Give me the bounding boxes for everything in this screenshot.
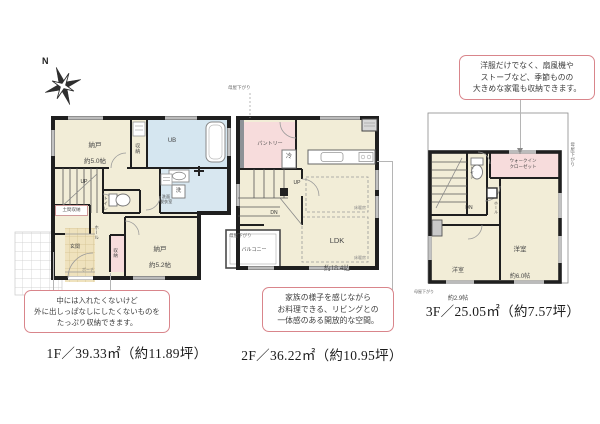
entrance-label: 玄関: [64, 244, 86, 250]
leader-3f-arrowhead: [517, 148, 523, 154]
leader-3f: [520, 100, 521, 148]
room-size: 約5.0帖: [60, 158, 130, 166]
bath-label: UB: [162, 138, 182, 146]
kitchen-counter: [308, 150, 375, 164]
leader-2f-b: [392, 161, 393, 307]
room-size: 約18.4帖: [302, 265, 372, 273]
room-size: 約6.0帖: [495, 274, 545, 282]
annotation-bubble-3f: 洋服だけでなく、扇風機や ストーブなど、季節ものの 大きめな家電も収納できます。: [459, 55, 595, 100]
leader-2f-a: [377, 161, 393, 162]
balcony-label: バルコニー: [229, 247, 279, 253]
floor-heating-label-a: 床暖房: [344, 205, 366, 210]
moya-note-top-2f: 母屋下がり: [228, 85, 258, 91]
compass-icon: [42, 64, 84, 108]
linen-box: [161, 174, 172, 185]
washroom-label: 洗面 脱衣室: [157, 194, 175, 205]
storage-box-topright: [362, 119, 377, 131]
annotation-bubble-1f: 中には入れたくないけど 外に出しっぱなしにしたくないものを たっぷり収納できます…: [24, 290, 170, 333]
room-nando-1f-top: 納戸 約5.0帖: [60, 134, 130, 175]
caption-1f: 1F／39.33㎡（約11.89坪）: [32, 342, 222, 362]
room-name: 洋室: [433, 268, 483, 276]
room-size: 約5.2帖: [125, 262, 195, 270]
pantry-label: パントリー: [245, 141, 295, 147]
closet-label-bottom: 収納: [113, 241, 119, 265]
moya-note-left-2f: 母屋下がり: [229, 233, 259, 239]
toilet-label-1f: トイレ: [103, 192, 109, 214]
stairs-dn-label-3f: DN: [460, 205, 478, 211]
sink-icon: [321, 153, 343, 162]
doma-storage-label: 土間収納: [55, 205, 88, 216]
room-name: 洋室: [495, 246, 545, 254]
room-name: 納戸: [125, 246, 195, 254]
entrance-tile-grid: [65, 228, 95, 282]
floor-heating-label-b: 床暖房: [344, 255, 366, 260]
closet-label-top: 収納: [134, 134, 140, 162]
stairs-dn-label-2f: DN: [265, 210, 283, 216]
bathtub-icon: [206, 122, 225, 162]
washer-label: 洗: [172, 188, 185, 195]
porch-label: ポーチ: [78, 267, 98, 272]
fridge-label: 冷: [282, 154, 296, 162]
caption-2f: 2F／36.22㎡（約10.95坪）: [222, 344, 422, 364]
ac-box: [432, 220, 442, 236]
moya-note-bottom-3f: 母屋下がり: [414, 289, 444, 294]
stove-icon: [359, 153, 373, 162]
leader-1f-b: [110, 273, 111, 290]
room-yoshitsu-a: 洋室 約6.0帖: [495, 226, 545, 302]
hall-label-1f: ホール: [94, 220, 100, 244]
hall-label-3f: ホール: [494, 197, 499, 219]
annotation-bubble-2f: 家族の様子を感じながら お料理できる、リビングとの 一体感のある開放的な空間。: [262, 287, 394, 332]
stairs-up-label-2f: UP: [288, 180, 306, 186]
toilet-label-3f: トイレ: [470, 163, 475, 183]
leader-1f-a: [53, 252, 54, 290]
room-nando-1f-bottom: 納戸 約5.2帖: [125, 238, 195, 279]
caption-3f: 3F／25.05㎡（約7.57坪）: [403, 300, 600, 320]
moya-note-right-3f: 母屋下がり: [570, 136, 576, 172]
stairs-up-label-1f: UP: [74, 179, 94, 185]
room-name: LDK: [302, 236, 372, 245]
floorplan-sheet: N: [0, 0, 600, 424]
wic-label: ウォークイン クローゼット: [491, 158, 555, 169]
toilet-icon: [109, 194, 130, 206]
room-name: 納戸: [60, 142, 130, 150]
